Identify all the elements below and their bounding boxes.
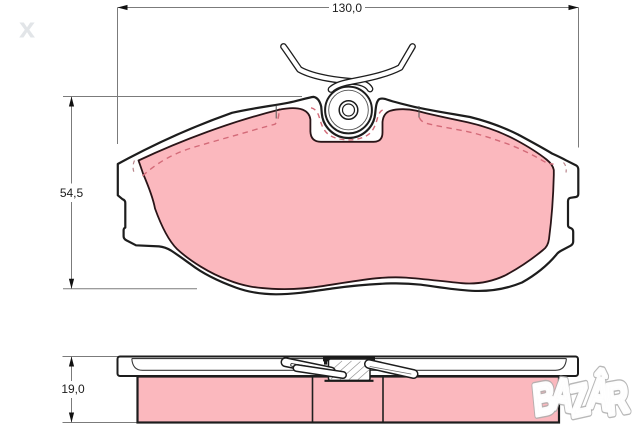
svg-text:x: x [19,13,35,45]
svg-text:54,5: 54,5 [60,186,84,200]
svg-text:R: R [604,373,630,425]
svg-text:19,0: 19,0 [61,382,85,396]
svg-text:130,0: 130,0 [332,1,362,15]
